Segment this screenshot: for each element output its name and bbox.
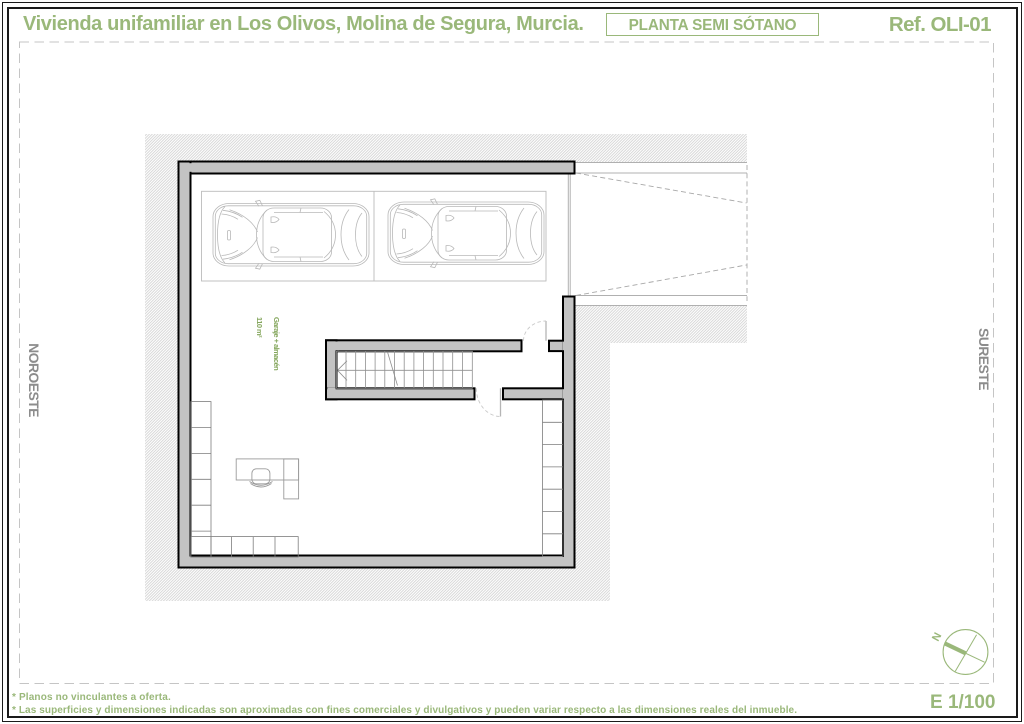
svg-text:N: N	[930, 631, 944, 644]
